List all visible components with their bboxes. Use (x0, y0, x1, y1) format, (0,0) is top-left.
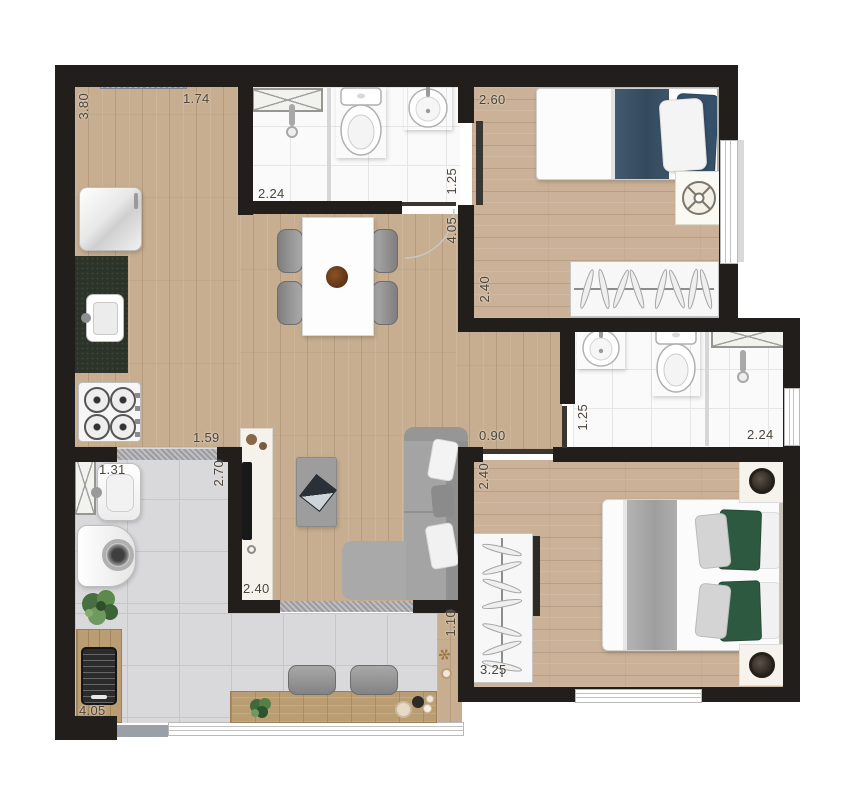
plant-icon (77, 586, 123, 628)
wall-right-lower (783, 318, 800, 702)
hanger-icon (474, 534, 531, 681)
wall-left (55, 65, 75, 718)
wardrobe-side-panel (533, 536, 540, 616)
dim-bedroom1-width: 2.60 (479, 92, 506, 107)
double-bed (602, 499, 788, 651)
wall-living-bottom-left (228, 600, 280, 613)
burner-icon (110, 414, 136, 440)
dim-bath1-width: 2.24 (258, 186, 285, 201)
hanger-icon (571, 262, 717, 315)
wall-bathroom1-bottom (238, 201, 402, 214)
dining-chair (372, 281, 398, 325)
dim-kitchen-height: 3.80 (76, 93, 91, 120)
shower-head-icon (286, 126, 298, 138)
dim-kitchen-width: 1.74 (183, 91, 210, 106)
fridge (79, 187, 142, 251)
kitchen-sink (86, 294, 124, 342)
bedroom1-window (720, 140, 738, 264)
wall-bathroom2-left (560, 318, 575, 404)
dim-bath2-depth: 1.25 (575, 404, 590, 431)
balcony-sliding-door-threshold (280, 601, 413, 612)
sofa-pillow (431, 484, 456, 518)
bedroom1-door (476, 121, 483, 205)
wall-bedroom2-top (553, 447, 800, 462)
dim-balcony-depth: 1.10 (443, 610, 458, 637)
stove (78, 382, 141, 442)
toilet (652, 326, 700, 396)
dim-kitchen-passage: 1.59 (193, 430, 220, 445)
washer-door (102, 539, 134, 571)
dim-bath2-width: 2.24 (747, 427, 774, 442)
round-sink (577, 327, 625, 369)
plant-icon (246, 693, 274, 721)
wall-bathroom1-left (238, 87, 253, 215)
shower-glass-partition (705, 330, 709, 446)
kitchen-counter (75, 256, 128, 373)
wall-bedroom2-top-stub (458, 447, 483, 462)
console-decor (246, 434, 257, 445)
serving-tray (393, 694, 437, 722)
faucet-icon (91, 487, 102, 498)
bedroom2-wardrobe (473, 533, 533, 683)
table-centerpiece (326, 266, 348, 288)
dim-living-width: 2.40 (243, 581, 270, 596)
bed-pillow-white (659, 98, 708, 173)
dim-laundry-depth: 2.70 (211, 460, 226, 487)
round-sink (404, 84, 452, 130)
dim-bedroom1-depth: 2.40 (477, 276, 492, 303)
dim-hall-width: 0.90 (479, 428, 506, 443)
faucet-icon (81, 313, 91, 323)
fan-side-table (675, 171, 724, 225)
laundry-cabinet (74, 455, 96, 515)
tv (242, 462, 252, 540)
bar-stool (350, 665, 398, 695)
bathroom1-shelf (252, 88, 323, 112)
dim-bath1-depth: 1.25 (444, 168, 459, 195)
grill-icon (81, 647, 117, 705)
dining-chair (277, 281, 303, 325)
console-knob (247, 545, 256, 554)
dim-bedroom2-width: 3.25 (480, 662, 507, 677)
stove-knobs (135, 389, 140, 437)
kitchen-laundry-threshold (117, 449, 217, 460)
nightstand (739, 459, 785, 503)
lamp-icon (749, 652, 775, 678)
washing-machine (77, 525, 136, 587)
bed-runner (627, 500, 677, 650)
wall-bedroom2-left (458, 462, 474, 702)
fridge-handle (134, 193, 138, 209)
dim-balcony-width: 4.05 (79, 703, 106, 718)
bathroom2-window (784, 388, 800, 446)
bathroom2-door (562, 406, 567, 448)
dining-chair (372, 229, 398, 273)
wall-top (55, 65, 737, 87)
dim-bedroom2-depth: 2.40 (476, 463, 491, 490)
bedroom2-window (575, 689, 702, 703)
burner-icon (84, 414, 110, 440)
window-sill (738, 140, 744, 262)
shower-glass-partition (327, 88, 331, 202)
toilet (336, 86, 386, 158)
wall-bedroom1-left-lower (458, 205, 474, 332)
burner-icon (110, 387, 136, 413)
shower-head-icon (289, 104, 295, 126)
wall-kitchen-bottom-left (75, 447, 117, 462)
bed-pillow-gray (694, 582, 731, 639)
hall-floor (456, 332, 562, 449)
dim-hall-length: 4.05 (444, 217, 459, 244)
dim-laundry-width: 1.31 (99, 462, 126, 477)
wall-bedroom1-left-upper (458, 87, 474, 123)
bed-pillow-gray (694, 512, 731, 569)
nightstand (739, 644, 785, 686)
wall-bottom-left-corner (55, 716, 117, 740)
bedroom1-wardrobe (570, 261, 719, 317)
coffee-table (296, 457, 337, 527)
decor-ring (441, 668, 452, 679)
balcony-railing (168, 722, 464, 736)
burner-icon (84, 387, 110, 413)
dining-chair (277, 229, 303, 273)
console-decor (259, 442, 267, 450)
wall-tv (228, 447, 242, 600)
bedroom2-door (483, 449, 553, 454)
fan-icon (679, 178, 719, 218)
shower-head-icon (737, 371, 749, 383)
single-bed (536, 88, 724, 180)
bar-stool (288, 665, 336, 695)
wall-bedroom1-bath2-divider (458, 318, 800, 332)
lamp-icon (749, 468, 775, 494)
sofa (342, 427, 468, 600)
shower-head-icon (740, 350, 746, 372)
floor-plan: ✻ 3.80 1.74 2.24 1.25 2.60 4.05 2.40 (0, 0, 867, 805)
magazine (299, 474, 337, 512)
